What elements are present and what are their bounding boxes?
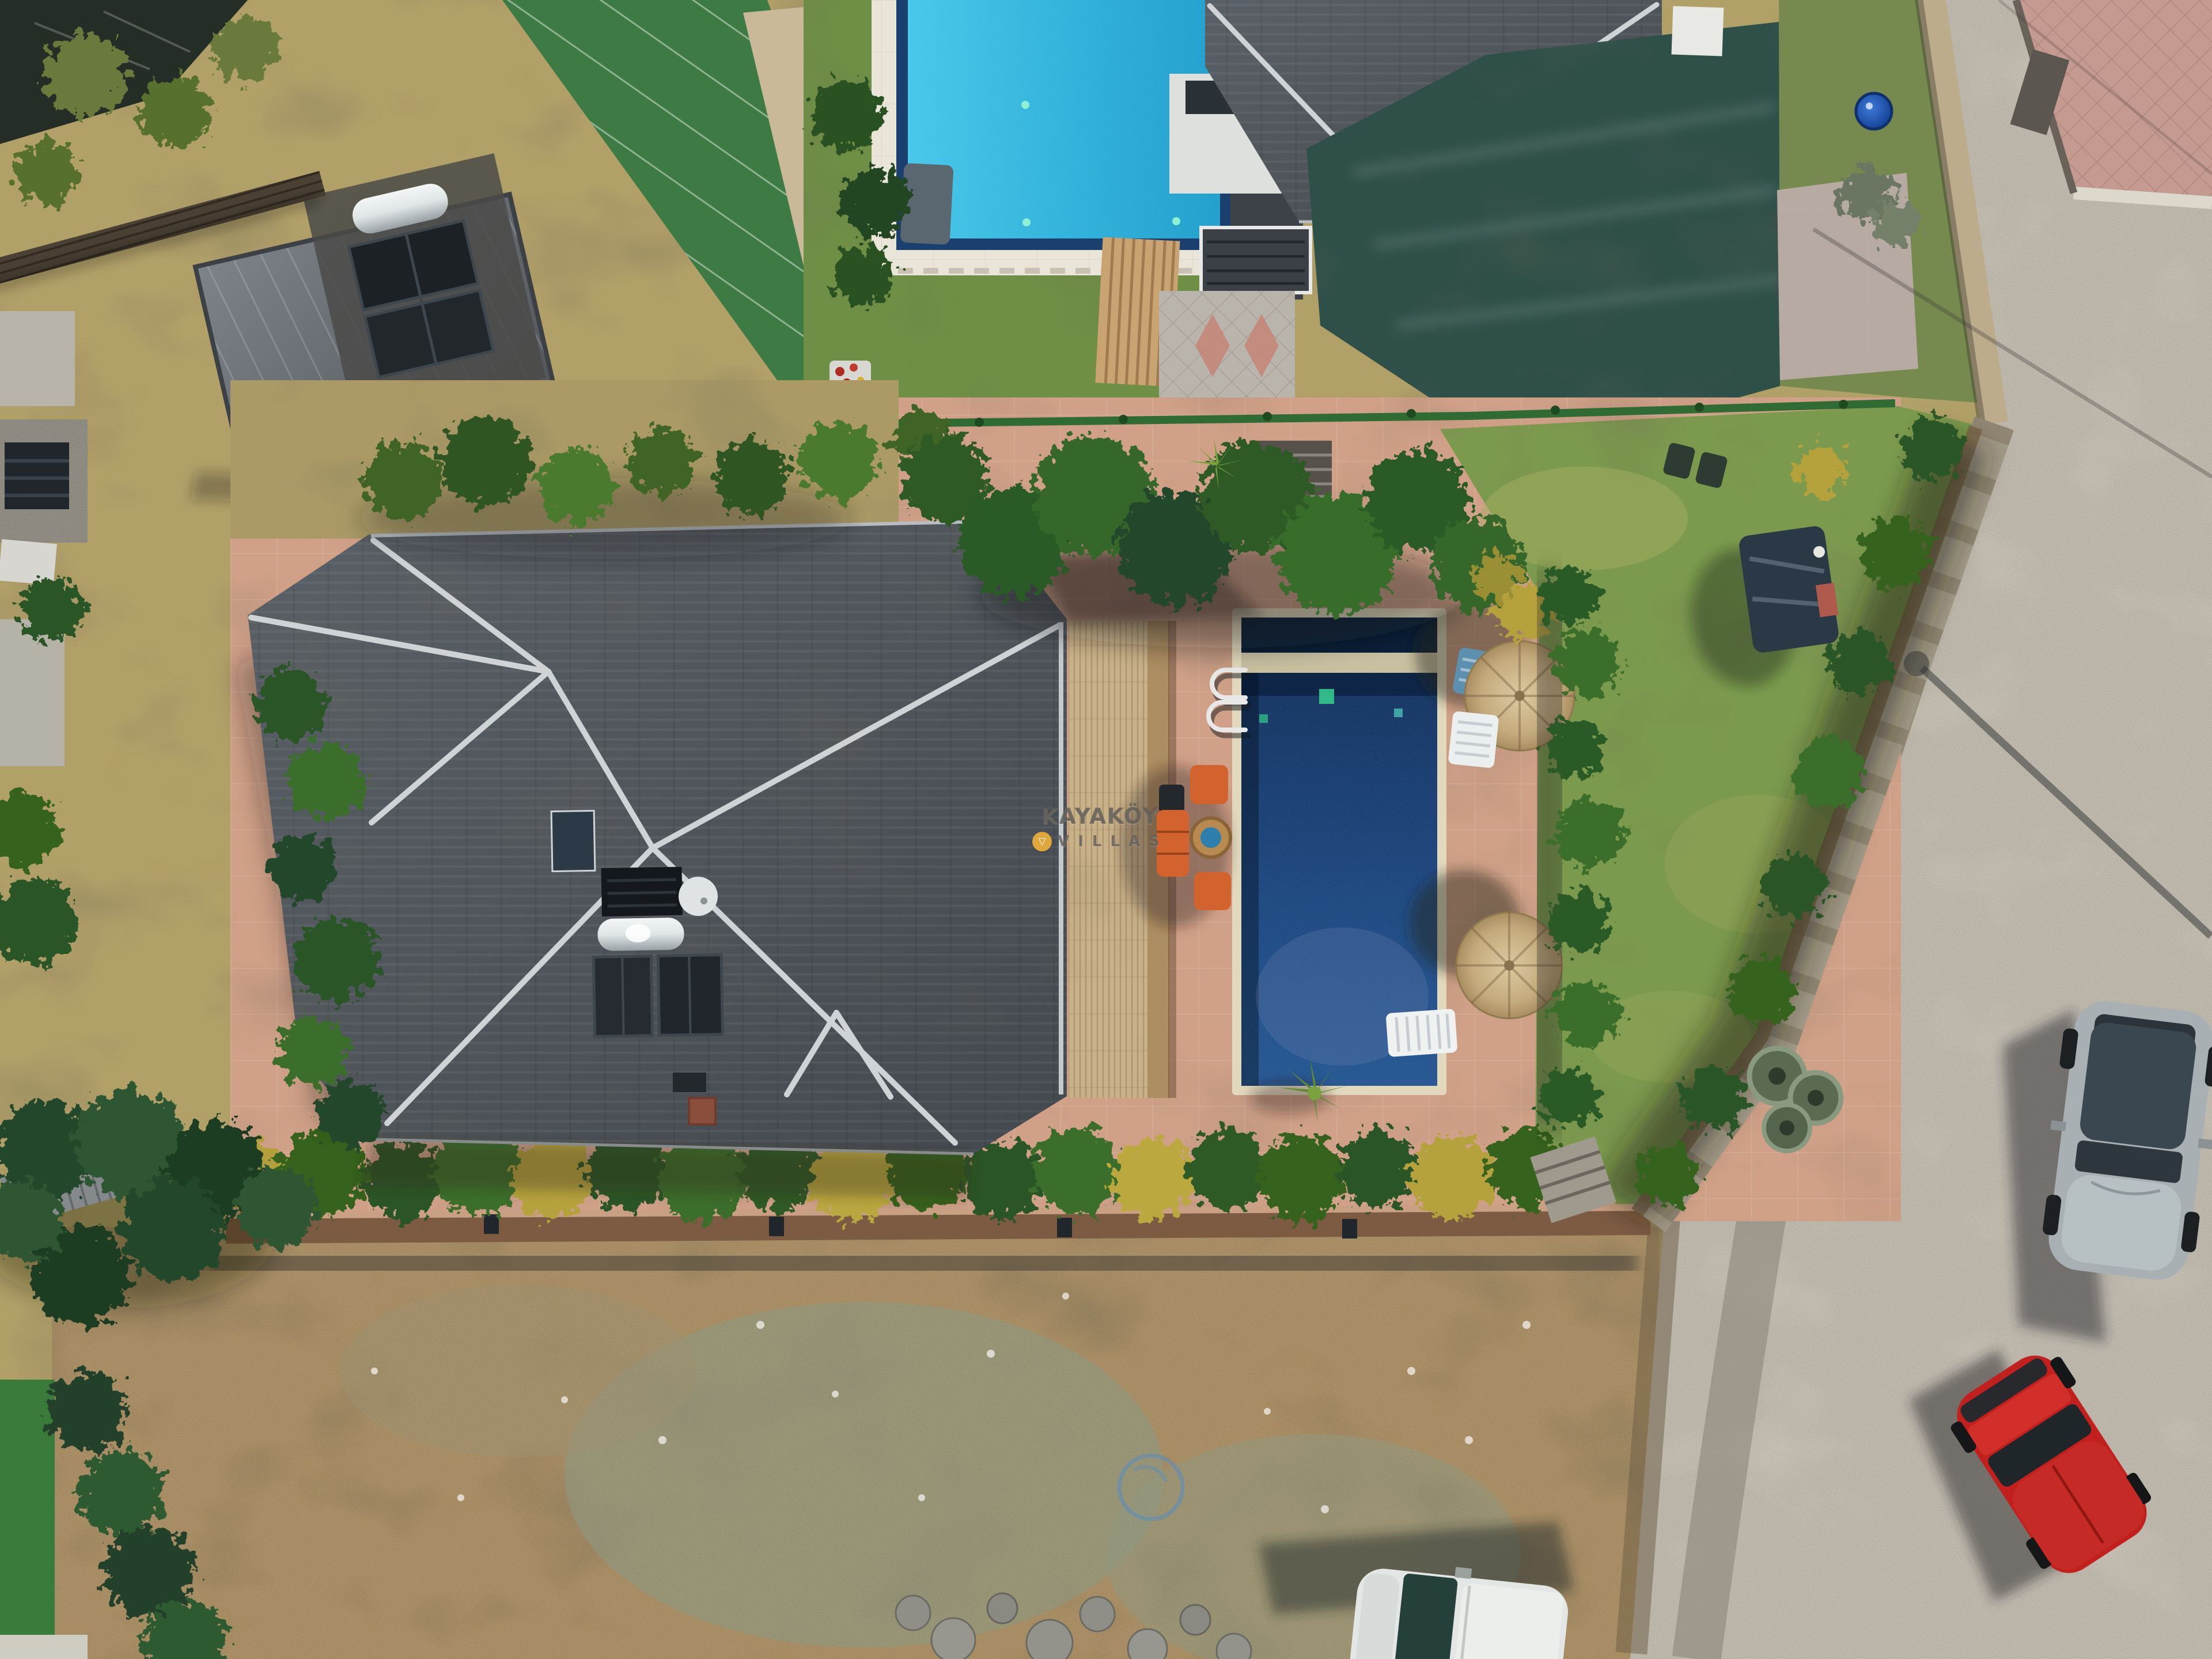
roof-vent: [673, 1073, 706, 1092]
covered-round-pool: [1856, 93, 1892, 129]
white-ball: [1813, 546, 1825, 558]
left-pad: [0, 311, 75, 406]
white-roof-section: [1672, 6, 1724, 56]
sun-lounger-white: [1385, 1009, 1457, 1057]
courtyard-window: [5, 442, 69, 509]
watermark-subtitle: VILLAS: [1058, 833, 1168, 850]
left-path: [0, 1635, 88, 1659]
chimney: [689, 1098, 715, 1124]
aerial-photo-villa: KAYAKÖY ▽ VILLAS: [0, 0, 2212, 1659]
orange-armchair: [1194, 872, 1231, 910]
sun-lounger-white: [1448, 711, 1499, 768]
watermark-brand: KAYAKÖY: [1030, 804, 1171, 829]
villa-hip-roof: [248, 520, 1067, 1154]
orange-armchair: [1190, 765, 1228, 804]
round-wicker-table: [1191, 818, 1230, 857]
satellite-dish: [679, 877, 718, 916]
watermark-logo-icon: ▽: [1032, 832, 1052, 851]
pool-stone-band: [1241, 653, 1437, 673]
paver-driveway: [1159, 291, 1295, 399]
cypress-shadow-band: [1544, 576, 1555, 1129]
watermark: KAYAKÖY ▽ VILLAS: [1030, 804, 1171, 851]
terrace-awning: [1201, 228, 1310, 293]
skylight: [551, 810, 595, 871]
